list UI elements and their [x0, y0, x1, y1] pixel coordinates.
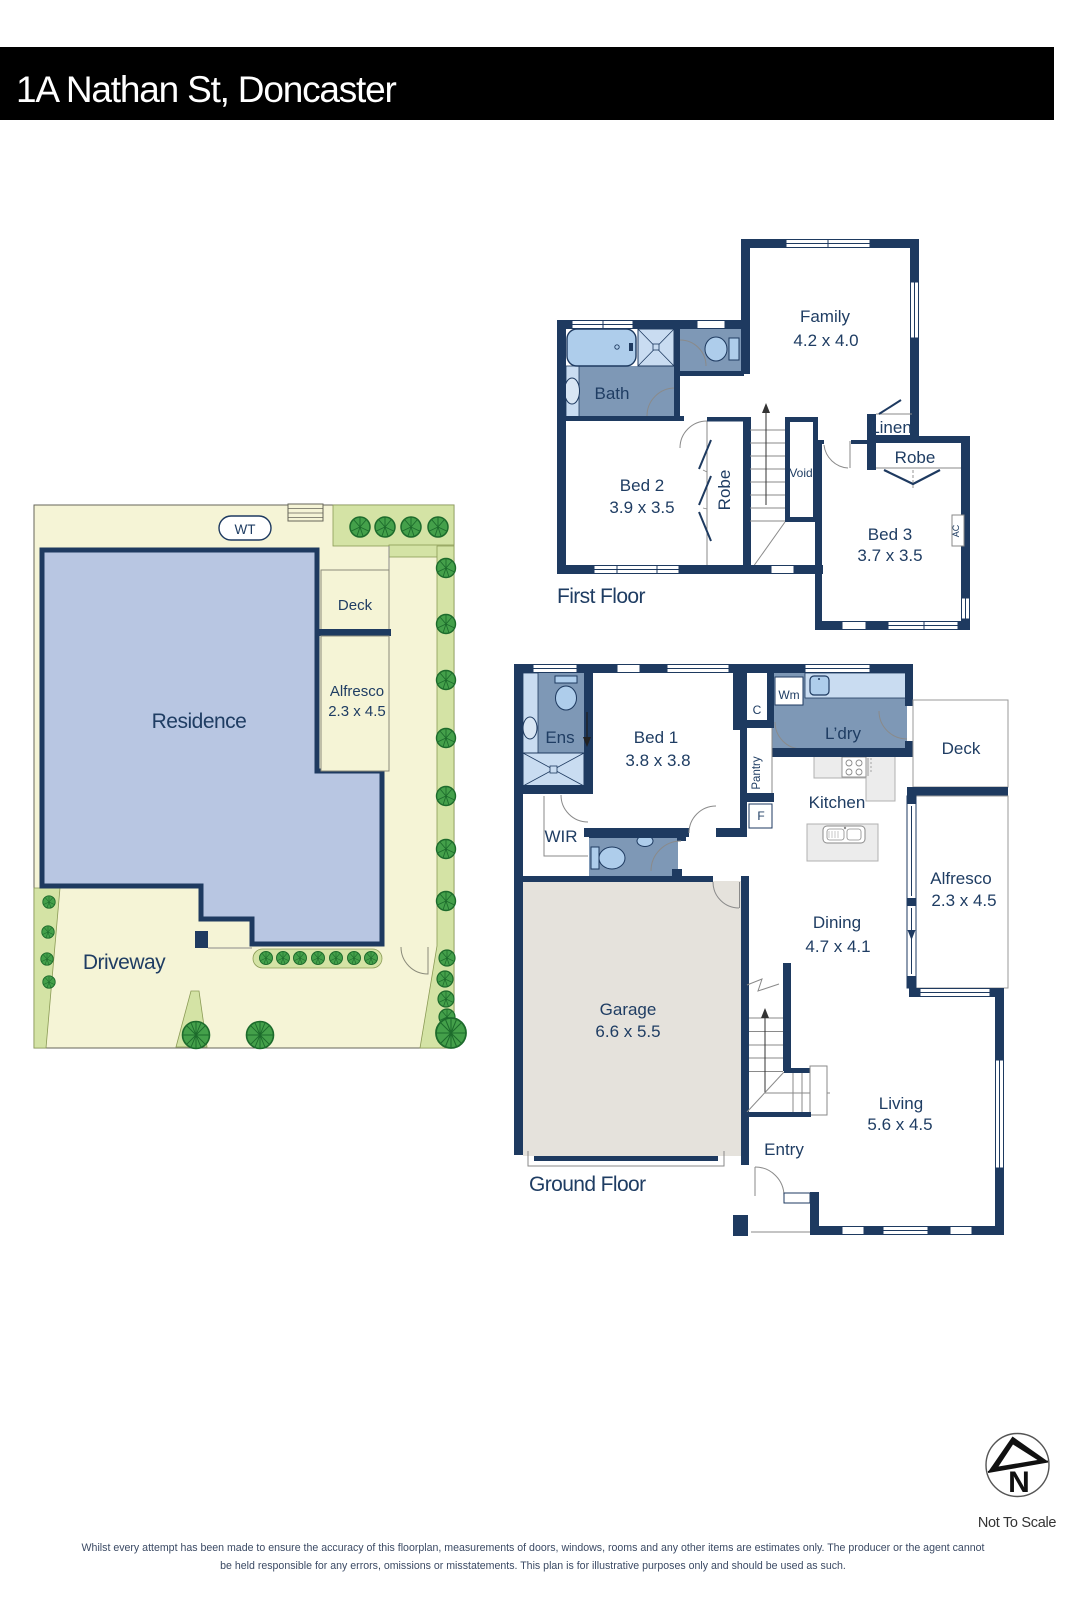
svg-text:Alfresco: Alfresco — [930, 869, 991, 888]
svg-text:Deck: Deck — [338, 597, 373, 614]
svg-text:Kitchen: Kitchen — [809, 793, 866, 812]
svg-text:Living: Living — [879, 1094, 923, 1113]
svg-text:Dining: Dining — [813, 913, 861, 932]
svg-text:Bed 2: Bed 2 — [620, 476, 664, 495]
svg-text:3.7 x 3.5: 3.7 x 3.5 — [857, 546, 922, 565]
svg-text:6.6 x 5.5: 6.6 x 5.5 — [595, 1022, 660, 1041]
svg-text:Linen: Linen — [870, 418, 912, 437]
svg-text:First Floor: First Floor — [557, 585, 646, 608]
svg-text:WT: WT — [235, 522, 256, 537]
svg-text:2.3 x 4.5: 2.3 x 4.5 — [328, 703, 386, 720]
svg-text:Robe: Robe — [715, 470, 734, 511]
svg-text:3.9 x 3.5: 3.9 x 3.5 — [609, 498, 674, 517]
svg-text:Void: Void — [789, 466, 812, 480]
svg-text:WIR: WIR — [544, 827, 577, 846]
svg-text:Garage: Garage — [600, 1000, 657, 1019]
svg-text:be held responsible for any er: be held responsible for any errors, omis… — [220, 1560, 846, 1572]
svg-text:Entry: Entry — [764, 1140, 804, 1159]
svg-text:Whilst every attempt has been: Whilst every attempt has been made to en… — [82, 1542, 985, 1554]
svg-text:F: F — [757, 809, 764, 823]
svg-text:N: N — [1008, 1466, 1030, 1499]
svg-text:Pantry: Pantry — [751, 756, 763, 789]
svg-text:L’dry: L’dry — [825, 724, 861, 743]
svg-text:2.3 x 4.5: 2.3 x 4.5 — [931, 891, 996, 910]
svg-text:Family: Family — [800, 307, 851, 326]
svg-text:Ens: Ens — [545, 728, 574, 747]
svg-text:1A Nathan St, Doncaster: 1A Nathan St, Doncaster — [16, 69, 397, 110]
svg-text:Not To Scale: Not To Scale — [978, 1515, 1057, 1531]
svg-text:AC: AC — [951, 524, 961, 537]
svg-text:4.7 x 4.1: 4.7 x 4.1 — [805, 937, 870, 956]
svg-text:Robe: Robe — [895, 448, 936, 467]
svg-text:3.8 x 3.8: 3.8 x 3.8 — [625, 751, 690, 770]
svg-text:4.2 x 4.0: 4.2 x 4.0 — [793, 331, 858, 350]
svg-text:Alfresco: Alfresco — [330, 683, 384, 700]
svg-text:Bed 3: Bed 3 — [868, 525, 912, 544]
svg-text:Wm: Wm — [778, 688, 799, 702]
svg-text:Bed 1: Bed 1 — [634, 728, 678, 747]
svg-text:Driveway: Driveway — [83, 951, 166, 974]
svg-text:Ground Floor: Ground Floor — [529, 1173, 646, 1196]
svg-text:Residence: Residence — [152, 710, 247, 733]
svg-text:5.6 x 4.5: 5.6 x 4.5 — [867, 1115, 932, 1134]
svg-text:Deck: Deck — [942, 739, 981, 758]
svg-text:C: C — [753, 703, 762, 717]
svg-text:Bath: Bath — [595, 384, 630, 403]
